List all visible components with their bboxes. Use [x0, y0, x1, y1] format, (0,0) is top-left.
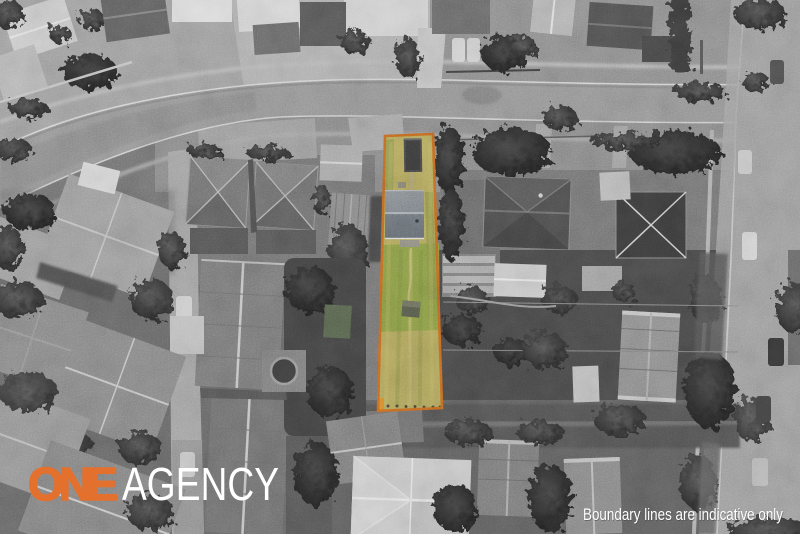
svg-text:AGENCY: AGENCY	[122, 458, 279, 510]
svg-text:ONE: ONE	[28, 458, 118, 510]
svg-text:Boundary lines are indicative: Boundary lines are indicative only	[583, 505, 783, 524]
